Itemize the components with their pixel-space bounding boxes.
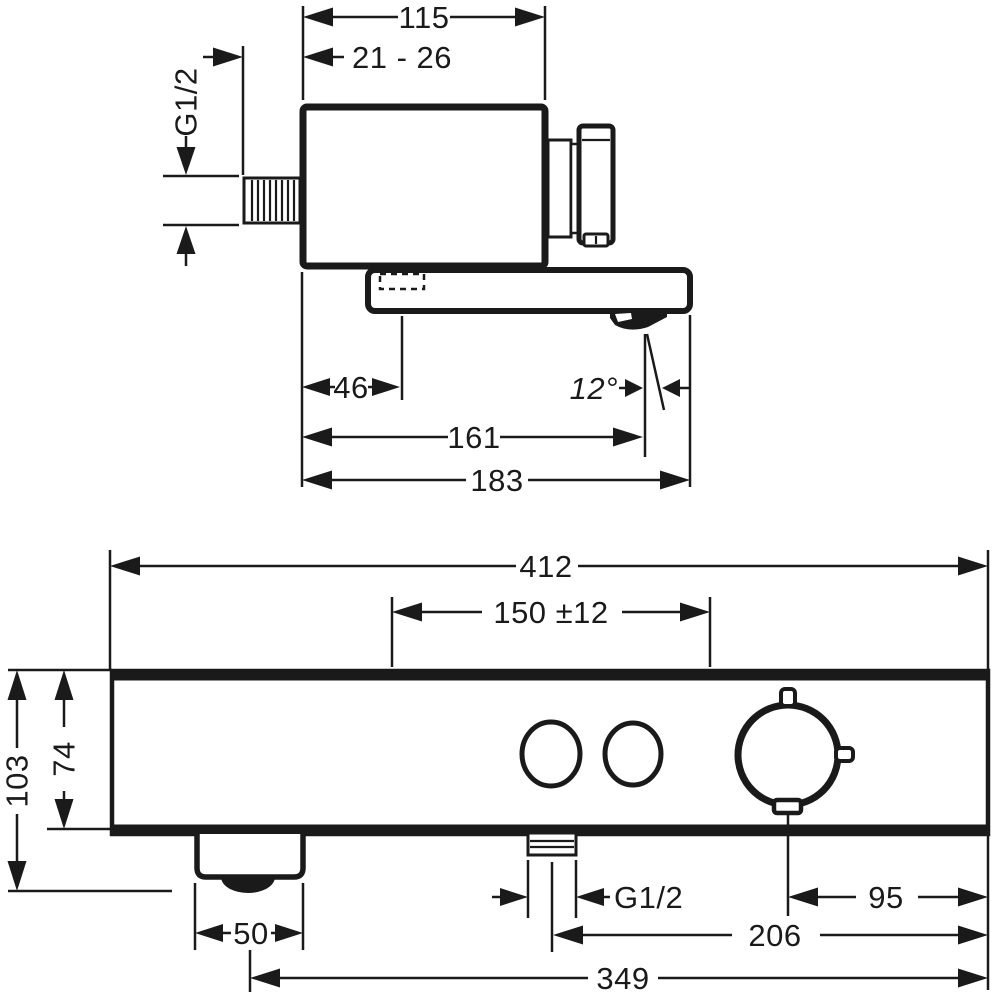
dim-21-26-label: 21 - 26 xyxy=(352,40,452,75)
dim-95-label: 95 xyxy=(868,880,903,915)
dim-183: 183 xyxy=(302,463,690,498)
dim-50-label: 50 xyxy=(233,916,268,951)
temp-knob-tab-bottom xyxy=(774,800,801,813)
dim-206: 206 xyxy=(553,918,988,953)
dim-161: 161 xyxy=(302,420,643,455)
select-button-spout xyxy=(605,723,661,785)
dim-21-26: 21 - 26 xyxy=(203,40,452,75)
dim-12deg: 12° xyxy=(570,371,691,406)
foot-drain-dome xyxy=(221,877,275,893)
hose-outlet-outline xyxy=(528,833,576,855)
temp-knob-ring xyxy=(738,705,838,805)
valve-body-side xyxy=(303,107,545,266)
temp-knob-side xyxy=(548,126,613,246)
dim-161-label: 161 xyxy=(447,420,500,455)
hose-outlet xyxy=(528,833,576,855)
front-view: 412 150 ±12 103 74 xyxy=(0,549,988,996)
temp-knob-tab-right xyxy=(836,748,853,761)
dim-74-label: 74 xyxy=(47,741,82,776)
dim-12deg-label: 12° xyxy=(570,371,618,406)
dim-46: 46 xyxy=(302,370,400,405)
technical-drawing-page: 115 21 - 26 G1/2 46 xyxy=(0,0,994,1000)
select-button-shower xyxy=(522,722,580,786)
foot-outline xyxy=(197,834,303,877)
temp-knob-tab-top xyxy=(781,689,795,706)
dim-103-label: 103 xyxy=(0,754,35,807)
dim-g12-outlet: G1/2 xyxy=(492,880,683,915)
dim-206-label: 206 xyxy=(748,918,801,953)
spout-side xyxy=(368,270,690,330)
dim-95: 95 xyxy=(788,880,988,915)
dim-150: 150 ±12 xyxy=(392,595,710,630)
inlet-thread-side xyxy=(244,178,300,223)
knob-outline xyxy=(579,126,613,243)
side-view: 115 21 - 26 G1/2 46 xyxy=(163,0,691,498)
body-outline xyxy=(303,107,545,266)
dim-150-label: 150 ±12 xyxy=(493,595,608,630)
dim-412: 412 xyxy=(110,549,988,584)
spout-outline xyxy=(368,270,690,311)
dim-183-label: 183 xyxy=(470,463,523,498)
dim-412-label: 412 xyxy=(519,549,572,584)
dim-74: 74 xyxy=(47,670,82,829)
dim-103: 103 xyxy=(0,670,35,891)
knob-adapter xyxy=(548,140,571,237)
dim-g12-inlet: G1/2 xyxy=(163,67,239,266)
technical-drawing: 115 21 - 26 G1/2 46 xyxy=(0,0,994,1000)
dim-g12-outlet-label: G1/2 xyxy=(614,880,683,915)
dim-115-label: 115 xyxy=(399,0,450,35)
dim-46-label: 46 xyxy=(333,370,368,405)
dim-50: 50 xyxy=(195,916,303,951)
spray-angle-line xyxy=(647,334,664,410)
mounting-foot xyxy=(197,834,303,893)
dim-349: 349 xyxy=(250,961,988,996)
dim-349-label: 349 xyxy=(596,961,649,996)
dim-115: 115 xyxy=(303,0,545,35)
dim-g12-inlet-label: G1/2 xyxy=(169,67,204,136)
